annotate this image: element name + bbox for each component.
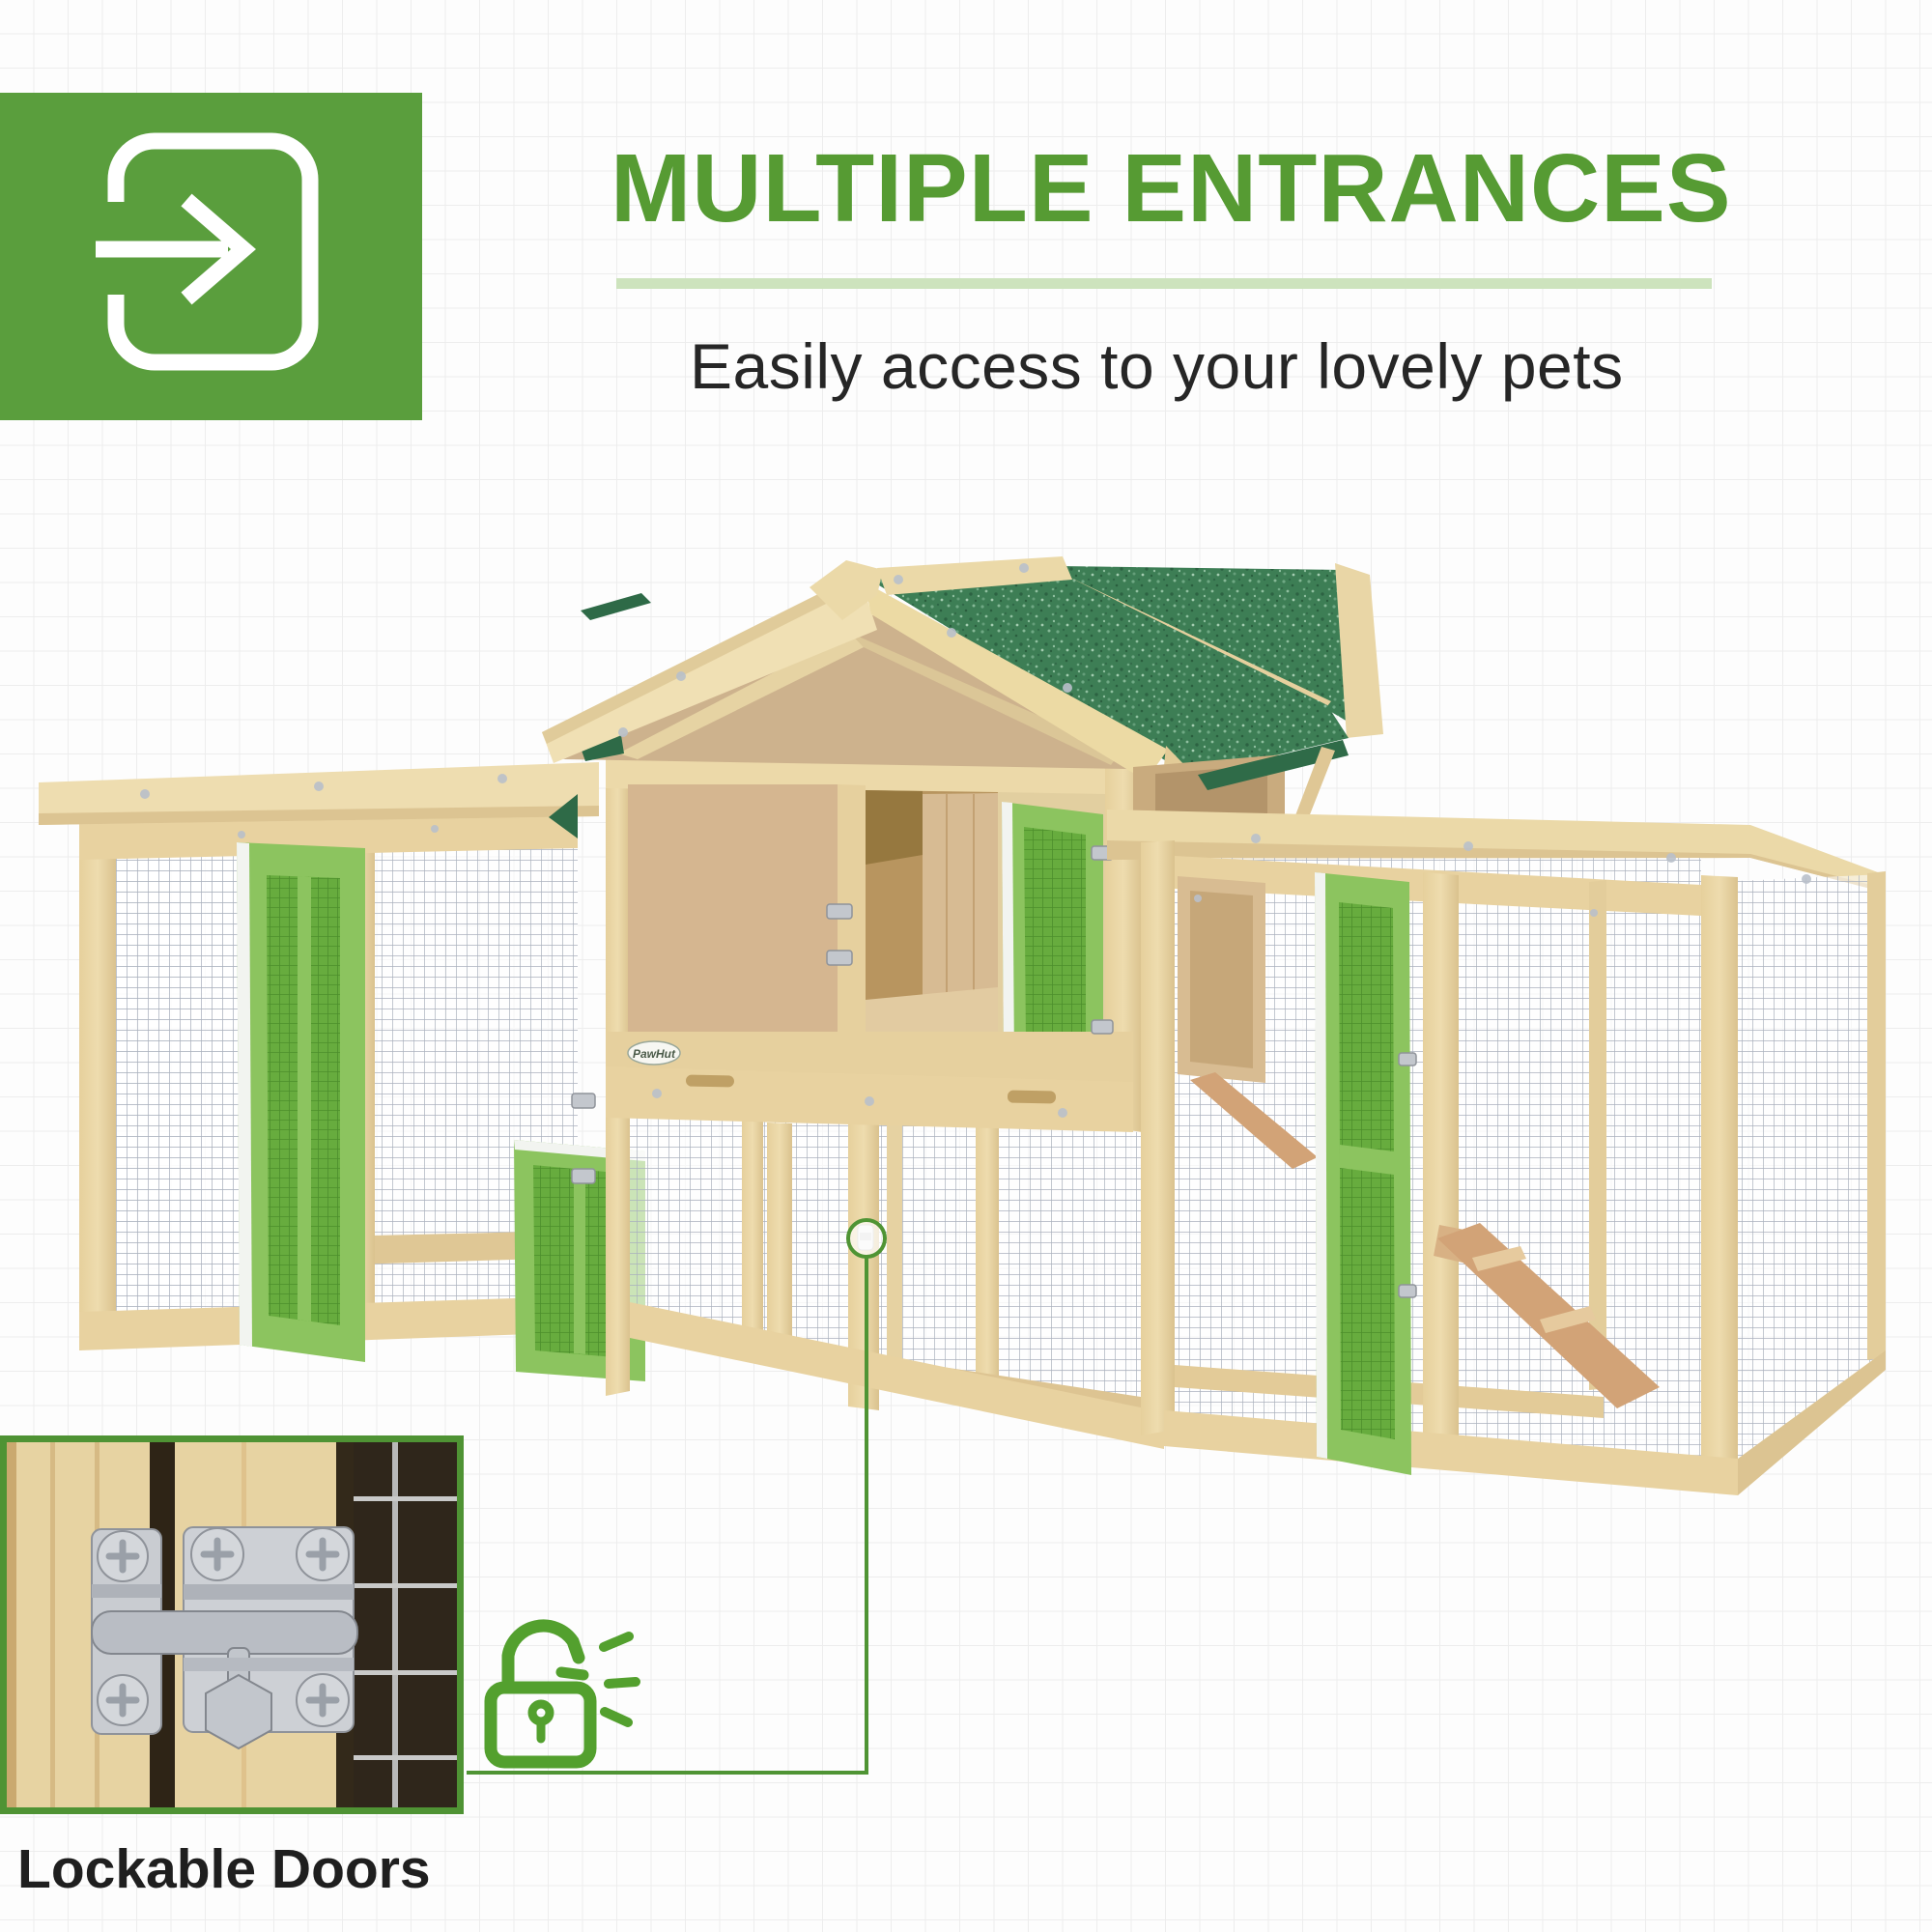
svg-text:MULTIPLE ENTRANCES: MULTIPLE ENTRANCES — [611, 134, 1732, 242]
svg-text:Lockable Doors: Lockable Doors — [17, 1838, 431, 1900]
svg-text:Easily access to your lovely p: Easily access to your lovely pets — [690, 330, 1624, 402]
svg-text:PawHut: PawHut — [633, 1047, 676, 1061]
